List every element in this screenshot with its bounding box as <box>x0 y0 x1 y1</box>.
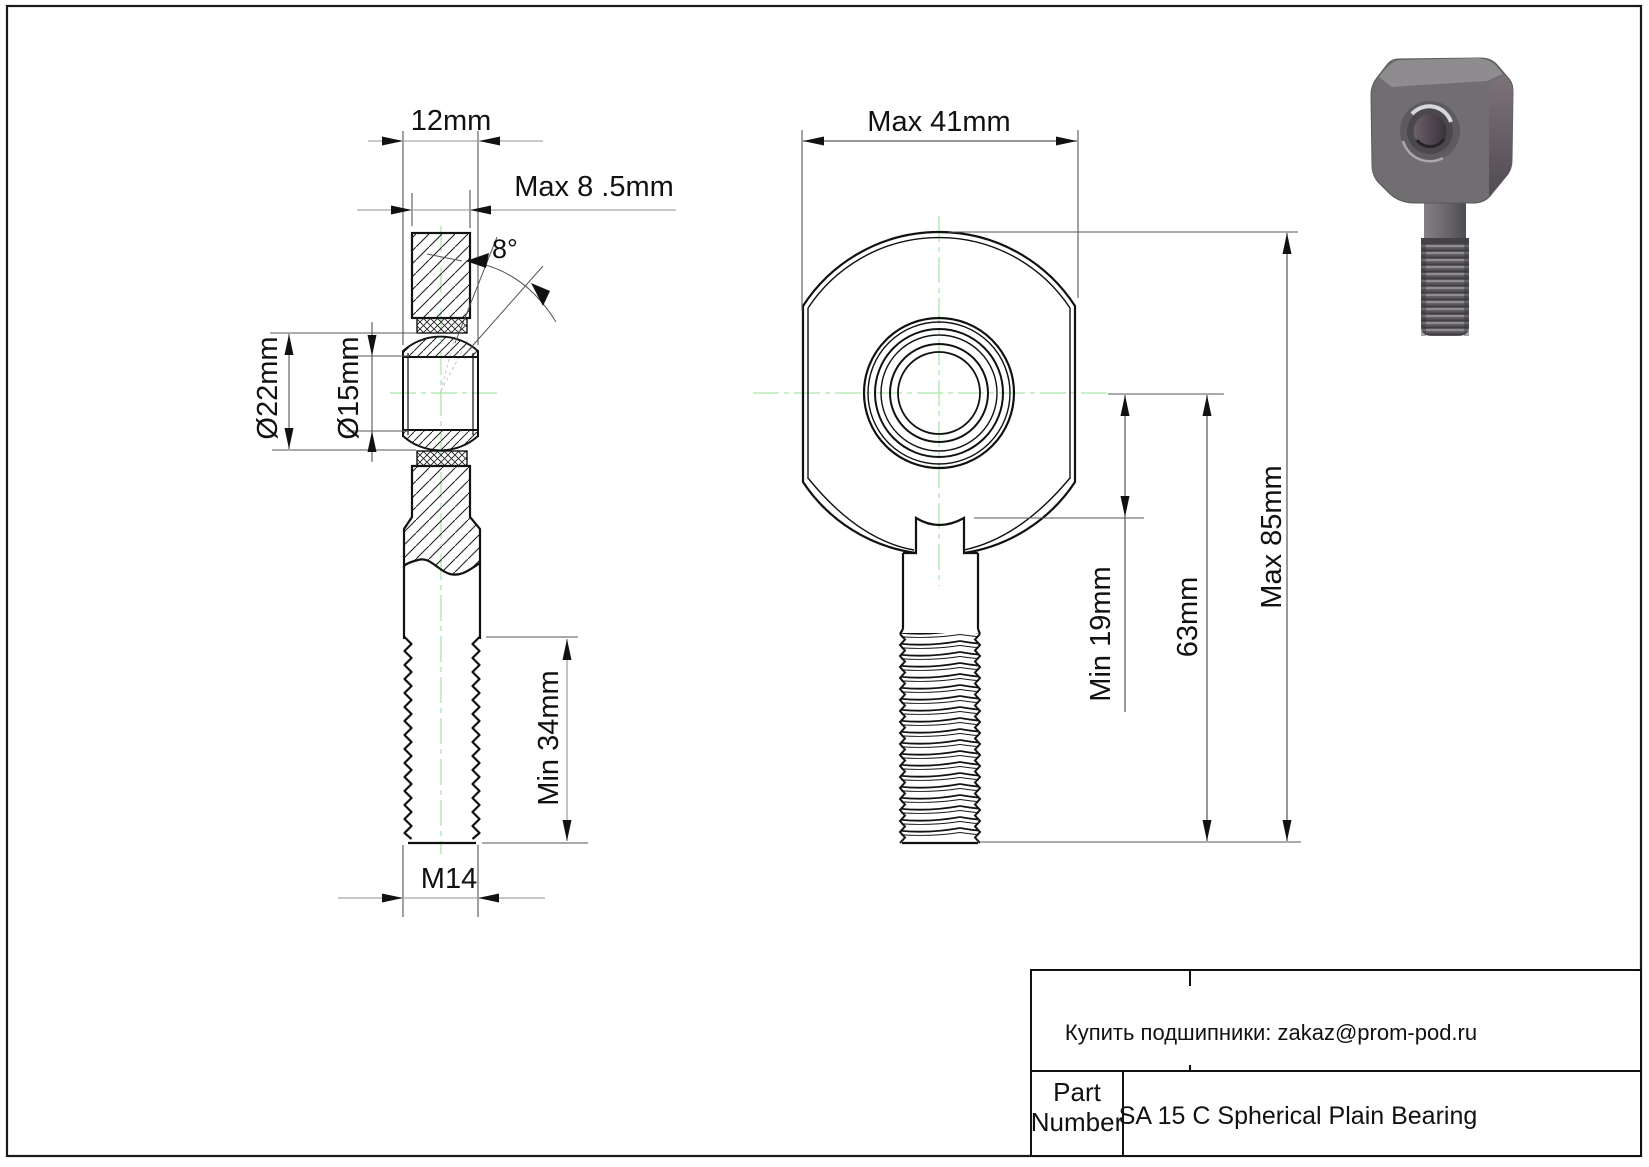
front-view: Max 41mm Min 19mm 63mm Max 85mm <box>753 106 1301 843</box>
engineering-drawing: 12mm Max 8 .5mm 8° Ø22mm <box>0 0 1649 1167</box>
thread-ridges <box>901 633 979 837</box>
order-note: Купить подшипники: zakaz@prom-pod.ru <box>1065 1020 1477 1045</box>
dim-thread-length-label: Min 34mm <box>533 670 565 805</box>
shank-shoulder <box>900 553 980 634</box>
shank-sides <box>404 563 480 639</box>
render-thread-step <box>1421 238 1469 244</box>
dim-center-to-thread-end-label: 63mm <box>1172 577 1204 658</box>
title-block: Купить подшипники: zakaz@prom-pod.ru Par… <box>1031 970 1641 1156</box>
dim-tilt-angle-label: 8° <box>492 234 518 264</box>
thread-right-edge <box>473 637 480 839</box>
dim-center-to-shoulder-label: Min 19mm <box>1085 566 1117 701</box>
render-thread-shade-right <box>1464 244 1469 336</box>
part-number-label-line1: Part <box>1053 1077 1101 1107</box>
ball-cap-bottom <box>403 430 478 450</box>
drawing-sheet: 12mm Max 8 .5mm 8° Ø22mm <box>0 0 1649 1167</box>
ball-cap-top <box>403 337 478 357</box>
dim-outer-diameter-label: Ø22mm <box>252 336 284 439</box>
render-3d <box>1371 58 1513 336</box>
dim-overall-length-label: Max 85mm <box>1256 465 1288 608</box>
dim-overall-length: Max 85mm <box>1256 233 1292 841</box>
side-section-view: 12mm Max 8 .5mm 8° Ø22mm <box>252 105 676 917</box>
dim-housing-width: Max 8 .5mm <box>357 171 676 228</box>
outer-ring-band-bottom <box>417 451 467 466</box>
render-thread-shade-left <box>1421 244 1426 336</box>
dim-center-to-shoulder: Min 19mm <box>1085 395 1130 712</box>
dim-bore-diameter: Ø15mm <box>333 322 409 462</box>
render-head-side-facet <box>1489 75 1513 196</box>
dim-thread-length: Min 34mm <box>482 637 588 843</box>
dim-head-width: Max 41mm <box>802 106 1078 311</box>
thread-left-edge <box>405 637 412 839</box>
part-number-label-line2: Number <box>1031 1107 1124 1137</box>
dim-thread-size: M14 <box>338 845 545 917</box>
part-name: SA 15 C Spherical Plain Bearing <box>1119 1102 1478 1130</box>
dim-housing-width-label: Max 8 .5mm <box>514 171 674 203</box>
centerlines-front <box>753 216 1112 586</box>
dim-thread-size-label: M14 <box>421 863 477 895</box>
dim-ball-width-label: 12mm <box>411 105 492 137</box>
dim-bore-diameter-label: Ø15mm <box>333 336 365 439</box>
housing-top-section <box>412 233 470 318</box>
dim-head-width-label: Max 41mm <box>867 106 1010 138</box>
housing-bottom-section <box>404 466 480 575</box>
render-thread <box>1421 244 1469 336</box>
dim-center-to-thread-end: 63mm <box>1172 395 1212 841</box>
